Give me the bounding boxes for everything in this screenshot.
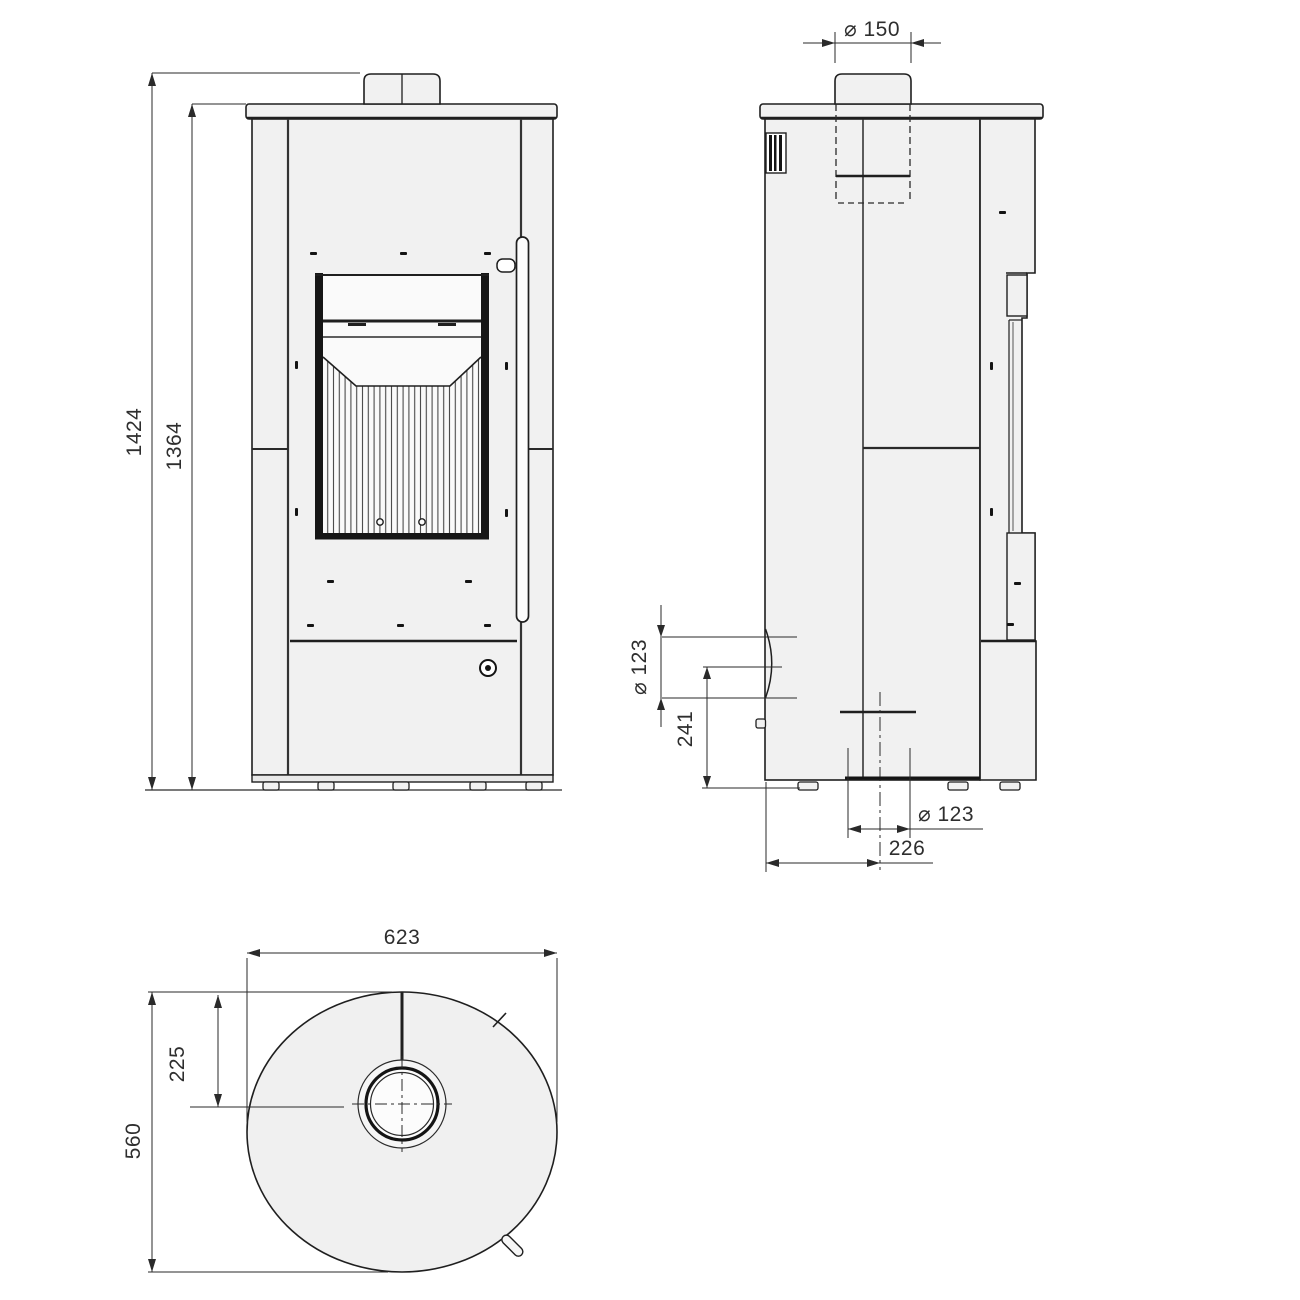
side-view: ⌀ 150 ⌀ 123 241 ⌀ 123: [628, 18, 1043, 872]
flue-offset-label: 225: [166, 1046, 189, 1083]
flue-collar-side: [835, 74, 911, 104]
floor-outlet-offset-label: 226: [889, 837, 926, 860]
flue-diameter-label: ⌀ 150: [844, 18, 900, 41]
fire-door: [315, 273, 489, 540]
door-handle-top: [500, 1233, 525, 1258]
rear-outlet-height-label: 241: [674, 711, 697, 748]
dim-flue-diameter: ⌀ 150: [803, 18, 941, 63]
front-profile: [980, 119, 1036, 780]
feet-side: [798, 782, 1020, 790]
top-plan-view: 623 560 225: [122, 926, 557, 1272]
top-plate-side: [760, 104, 1043, 119]
dim-body-height: 1364: [163, 104, 246, 790]
top-plate-front: [246, 104, 557, 119]
latch-box-side: [1007, 275, 1027, 316]
door-handle: [517, 237, 529, 622]
vent-grille: [766, 133, 786, 173]
front-view: 1424 1364: [123, 73, 562, 790]
rear-bump: [756, 719, 766, 728]
body-height-label: 1364: [163, 422, 186, 471]
stove-dimension-drawing: 1424 1364: [0, 0, 1300, 1300]
overall-height-label: 1424: [123, 408, 146, 457]
door-latch: [497, 259, 515, 272]
stove-body-side: [765, 119, 980, 780]
depth-label: 560: [122, 1123, 145, 1160]
base-strip-front: [252, 775, 553, 782]
width-label: 623: [384, 926, 421, 949]
feet-front: [263, 782, 542, 790]
floor-outlet-diameter-label: ⌀ 123: [918, 803, 974, 826]
drawing-sheet: 1424 1364: [0, 0, 1300, 1300]
rear-outlet-diameter-label: ⌀ 123: [628, 639, 651, 695]
dim-floor-outlet-offset: 226: [766, 782, 933, 872]
